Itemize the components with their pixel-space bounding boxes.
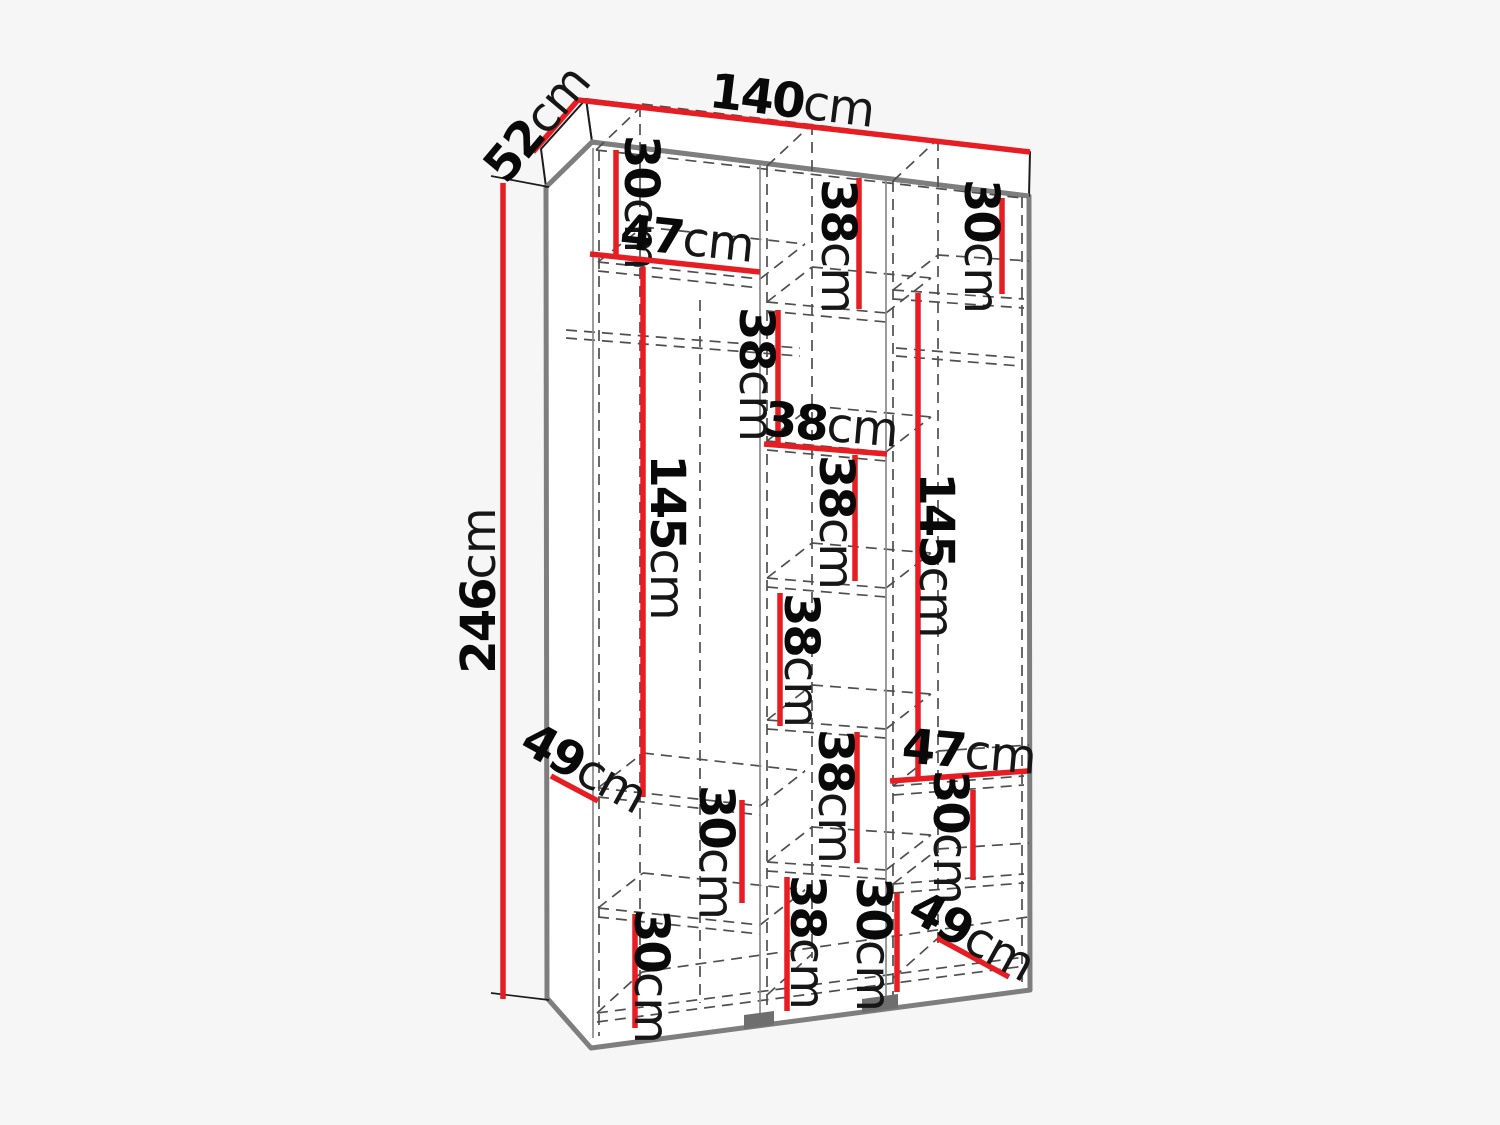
dimension-unit: cm	[908, 567, 964, 638]
dimension-unit: cm	[623, 972, 679, 1043]
dimension-value: 30	[953, 179, 1009, 242]
dimension-unit: cm	[779, 938, 835, 1009]
dimension-unit: cm	[680, 211, 757, 274]
dimension-value: 38	[773, 593, 829, 656]
dimension-value: 38	[810, 179, 866, 242]
dimension-30cm-label: 30cm	[845, 877, 901, 1011]
dimension-value: 246	[451, 579, 507, 673]
dimension-30cm-label: 30cm	[623, 909, 679, 1043]
dimension-value: 30	[845, 877, 901, 940]
wardrobe-diagram-canvas: 52cm140cm246cm30cm47cm145cm49cm30cm30cm3…	[0, 0, 1500, 1125]
dimension-30cm-label: 30cm	[688, 785, 744, 919]
dimension-unit: cm	[639, 549, 695, 620]
dimension-145cm-label: 145cm	[639, 454, 695, 619]
dimension-unit: cm	[688, 848, 744, 919]
dimension-246cm-label: 246cm	[451, 508, 507, 673]
dimension-unit: cm	[845, 940, 901, 1011]
dimension-38cm-label: 38cm	[810, 179, 866, 313]
dimension-value: 38	[807, 729, 863, 792]
dimension-unit: cm	[807, 792, 863, 863]
dimension-value: 30	[688, 785, 744, 848]
dimension-value: 145	[639, 454, 695, 548]
dimension-unit: cm	[953, 242, 1009, 313]
dimension-value: 30	[613, 135, 669, 198]
dimension-value: 30	[623, 909, 679, 972]
dimension-value: 47	[617, 204, 685, 266]
dimension-value: 38	[808, 455, 864, 518]
wardrobe-dimension-diagram: 52cm140cm246cm30cm47cm145cm49cm30cm30cm3…	[0, 0, 1500, 1125]
dimension-145cm-label: 145cm	[908, 472, 964, 637]
dimension-value: 38	[779, 875, 835, 938]
dimension-unit: cm	[824, 397, 900, 459]
dimension-unit: cm	[800, 75, 877, 139]
dimension-value: 145	[908, 472, 964, 566]
dimension-unit: cm	[810, 242, 866, 313]
dimension-value: 38	[728, 307, 784, 370]
dimension-unit: cm	[451, 508, 507, 579]
dimension-value: 140	[707, 63, 808, 130]
dimension-38cm-label: 38cm	[807, 729, 863, 863]
dimension-unit: cm	[808, 518, 864, 589]
dimension-38cm-label: 38cm	[773, 593, 829, 727]
dimension-38cm-label: 38cm	[808, 455, 864, 589]
dimension-unit: cm	[773, 656, 829, 727]
dimension-38cm-label: 38cm	[779, 875, 835, 1009]
dimension-value: 30	[922, 770, 978, 833]
dimension-30cm-label: 30cm	[953, 179, 1009, 313]
dimension-value: 38	[762, 391, 829, 452]
dimension-38cm-label: 38cm	[762, 391, 900, 458]
